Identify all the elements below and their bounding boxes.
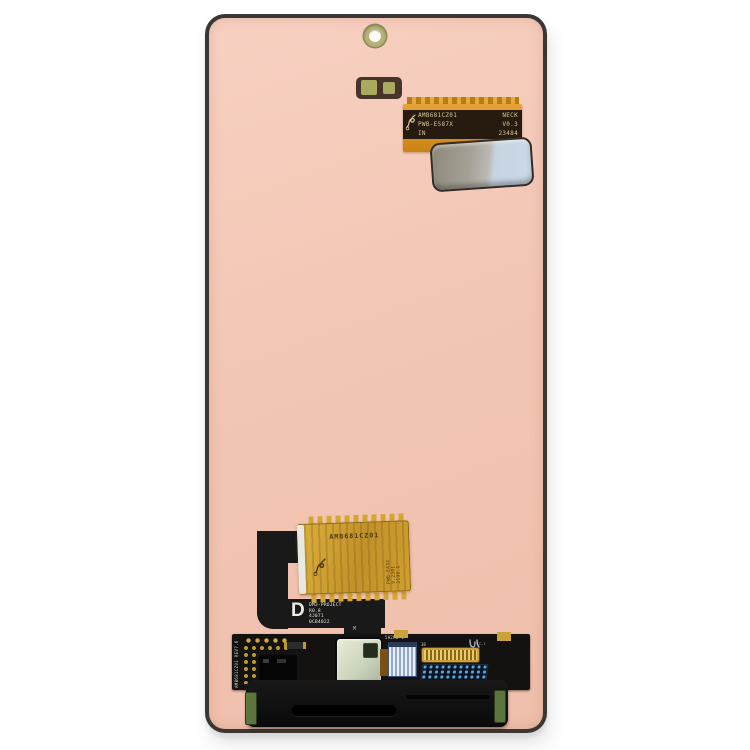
pin-count-marking: 38: [421, 642, 426, 647]
ic-chip: [257, 653, 299, 683]
top-label-pwb: PWB-E587X: [418, 120, 453, 129]
flex-revision-letter: D: [291, 600, 305, 622]
module-aperture: [363, 643, 378, 658]
ribbon-connector: [388, 642, 417, 677]
certification-logo-icon: C-1: [468, 635, 486, 649]
top-flex-cable: AMB681CZ01 NECK PWB-E587X V0.3 IN 23484: [403, 96, 533, 196]
manufacturer-logo-icon: [405, 113, 417, 133]
speaker-slot: [292, 705, 396, 716]
top-label-part: AMB681CZ01: [418, 111, 457, 120]
flex-label-text: DM3-PROJECT R0.8 4J071 0CB4022: [309, 603, 342, 625]
frame-groove: [406, 695, 490, 699]
top-label-row1: AMB681CZ01 NECK: [418, 111, 518, 120]
chip-marking-block: [277, 659, 286, 663]
board-to-board-connector: [422, 648, 479, 662]
driver-side-text: PWB-EA32 V.2301 2190.1: [385, 527, 403, 584]
stem-marking: M: [353, 626, 356, 632]
top-label-row2: PWB-E587X V0.3: [418, 120, 518, 129]
camera-hole: [364, 25, 386, 47]
green-pcb-tab-right: [494, 690, 506, 723]
top-label-version: V0.3: [502, 120, 518, 129]
green-pcb-tab-left: [245, 692, 257, 725]
top-label-row3: IN 23484: [418, 129, 518, 138]
flex-fold: [380, 649, 388, 676]
bottom-frame-strip: [246, 680, 508, 727]
top-flex-label: AMB681CZ01 NECK PWB-E587X V0.3 IN 23484: [403, 110, 522, 139]
metallic-sticker: [429, 137, 534, 193]
pcb-edge-marking: AMB681CZ01 REV7.6: [234, 638, 241, 688]
top-label-neck: NECK: [502, 111, 518, 120]
manufacturer-logo-icon: [312, 556, 327, 576]
driver-flex-board: AMB681CZ01 PWB-EA32 V.2301 2190.1: [297, 513, 416, 603]
chip-marking-block: [263, 659, 269, 663]
sensor-aperture-small: [383, 82, 395, 94]
certification-code: C-1: [479, 642, 485, 646]
display-assembly: D DM3-PROJECT R0.8 4J071 0CB4022 M AMB68…: [205, 14, 547, 733]
sensor-aperture-large: [361, 80, 377, 95]
top-label-in: IN: [418, 129, 426, 138]
camera-hole-center: [369, 30, 381, 42]
sensor-window: [356, 77, 402, 99]
flex-label-line1: DM3-PROJECT: [309, 603, 342, 609]
gold-tab: [497, 632, 511, 641]
smd-component: [284, 642, 306, 649]
gold-tab: [394, 630, 408, 638]
flex-label-line4: 0CB4022: [309, 620, 342, 626]
